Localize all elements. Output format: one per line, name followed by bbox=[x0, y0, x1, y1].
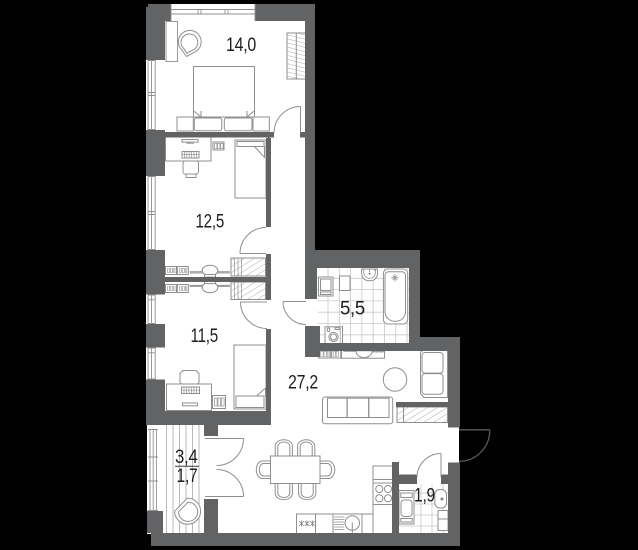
svg-text:11,5: 11,5 bbox=[191, 325, 219, 347]
svg-text:14,0: 14,0 bbox=[226, 34, 256, 56]
svg-text:5,5: 5,5 bbox=[340, 298, 365, 320]
svg-text:12,5: 12,5 bbox=[196, 211, 225, 233]
svg-text:27,2: 27,2 bbox=[288, 371, 318, 393]
svg-text:1,9: 1,9 bbox=[414, 485, 435, 507]
svg-text:1,7: 1,7 bbox=[177, 465, 198, 487]
